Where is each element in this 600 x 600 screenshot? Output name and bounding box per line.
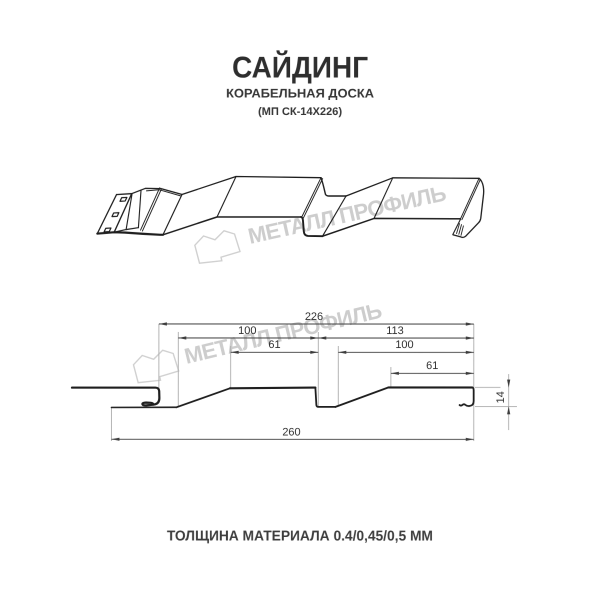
svg-text:100: 100 — [395, 339, 413, 351]
svg-text:100: 100 — [238, 325, 256, 337]
svg-text:КОРАБЕЛЬНАЯ ДОСКА: КОРАБЕЛЬНАЯ ДОСКА — [226, 86, 374, 100]
svg-text:ТОЛЩИНА МАТЕРИАЛА 0.4/0,45/0,5: ТОЛЩИНА МАТЕРИАЛА 0.4/0,45/0,5 ММ — [167, 528, 433, 544]
svg-text:14: 14 — [495, 391, 507, 403]
svg-text:61: 61 — [268, 339, 280, 351]
svg-text:226: 226 — [305, 311, 323, 323]
svg-text:(МП СК-14Х226): (МП СК-14Х226) — [258, 106, 342, 118]
svg-text:260: 260 — [282, 426, 300, 438]
svg-text:113: 113 — [386, 325, 404, 337]
svg-text:САЙДИНГ: САЙДИНГ — [232, 49, 368, 84]
svg-text:61: 61 — [426, 360, 438, 372]
